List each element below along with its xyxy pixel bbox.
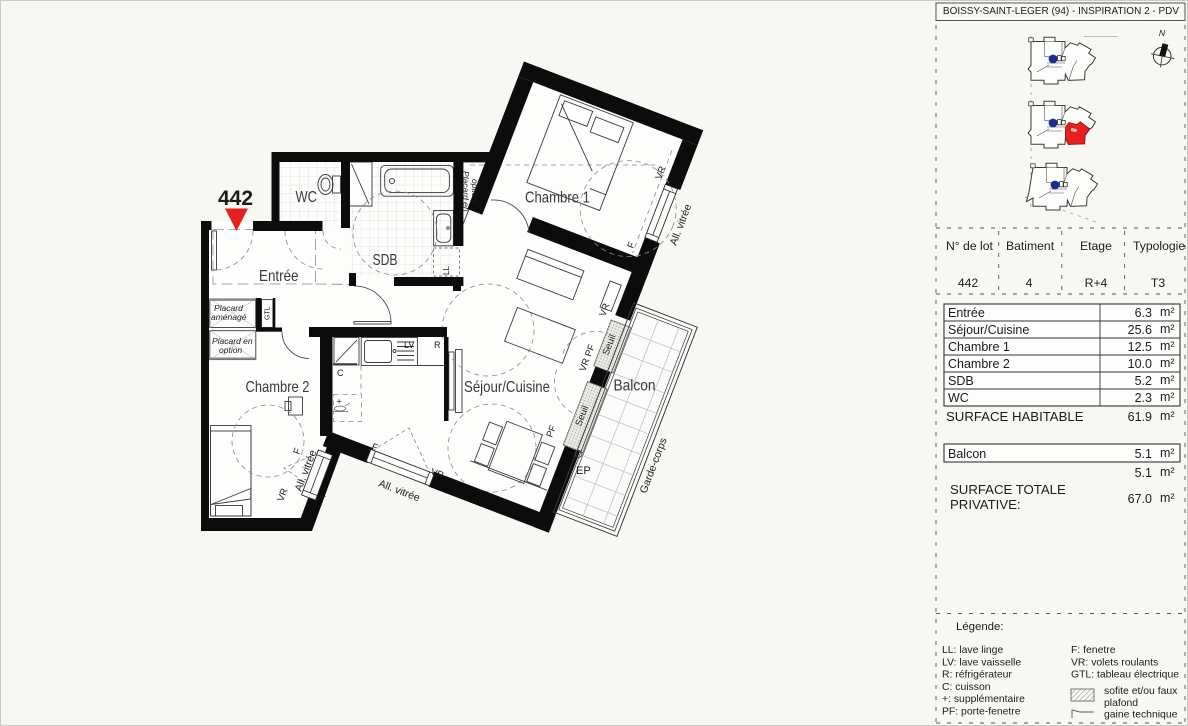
svg-text:67.0: 67.0 (1128, 492, 1152, 506)
svg-text:61.9: 61.9 (1128, 410, 1152, 424)
svg-text:GTL: tableau électrique: GTL: tableau électrique (1071, 670, 1179, 681)
svg-text:Séjour/Cuisine: Séjour/Cuisine (464, 379, 550, 396)
svg-text:sofite et/ou faux: sofite et/ou faux (1104, 686, 1178, 697)
svg-text:LV: lave vaisselle: LV: lave vaisselle (942, 657, 1021, 668)
svg-text:442: 442 (958, 276, 979, 290)
svg-text:m²: m² (1160, 339, 1175, 353)
svg-text:Entrée: Entrée (948, 306, 985, 320)
svg-text:4: 4 (1026, 276, 1033, 290)
svg-text:10.0: 10.0 (1128, 357, 1152, 371)
svg-text:m²: m² (1160, 305, 1175, 319)
svg-text:EP: EP (576, 465, 591, 477)
svg-text:R: réfrigérateur: R: réfrigérateur (942, 670, 1012, 681)
svg-text:2.3: 2.3 (1135, 391, 1152, 405)
svg-text:Placard en: Placard en (461, 171, 471, 212)
svg-text:LL: LL (442, 266, 451, 275)
svg-text:Chambre 2: Chambre 2 (948, 357, 1010, 371)
svg-text:N: N (1159, 28, 1166, 38)
svg-text:Balcon: Balcon (948, 447, 986, 461)
svg-text:25.6: 25.6 (1128, 323, 1152, 337)
svg-text:m²: m² (1160, 356, 1175, 370)
svg-text:m²: m² (1160, 390, 1175, 404)
svg-text:m²: m² (1160, 491, 1175, 505)
svg-text:WC: WC (296, 189, 318, 206)
svg-text:LV: LV (404, 340, 414, 350)
svg-text:5.1: 5.1 (1135, 466, 1152, 480)
svg-text:Chambre 1: Chambre 1 (948, 340, 1010, 354)
svg-text:12.5: 12.5 (1128, 340, 1152, 354)
svg-text:Entrée: Entrée (259, 268, 299, 285)
svg-text:Séjour/Cuisine: Séjour/Cuisine (948, 323, 1029, 337)
svg-text:m²: m² (1160, 465, 1175, 479)
svg-text:6.3: 6.3 (1135, 306, 1152, 320)
svg-text:Etage: Etage (1080, 239, 1112, 253)
svg-text:m²: m² (1160, 373, 1175, 387)
svg-text:m²: m² (1160, 446, 1175, 460)
svg-text:C: C (337, 368, 344, 378)
svg-text:GTL: GTL (265, 306, 272, 320)
svg-text:R+4: R+4 (1085, 276, 1108, 290)
svg-text:F: fenetre: F: fenetre (1071, 645, 1116, 656)
svg-text:Typologie: Typologie (1133, 239, 1185, 253)
svg-text:442: 442 (218, 187, 253, 210)
svg-text:gaine technique: gaine technique (1104, 710, 1178, 721)
svg-text:m²: m² (1160, 322, 1175, 336)
svg-text:Chambre 1: Chambre 1 (525, 190, 590, 207)
svg-text:N° de lot: N° de lot (946, 239, 993, 253)
svg-text:BOISSY-SAINT-LEGER (94) - INSP: BOISSY-SAINT-LEGER (94) - INSPIRATION 2 … (943, 6, 1179, 17)
svg-text:SURFACE TOTALE: SURFACE TOTALE (950, 482, 1066, 497)
svg-text:SDB: SDB (948, 374, 974, 388)
svg-text:option: option (470, 179, 480, 202)
svg-text:aménagé: aménagé (211, 312, 247, 322)
svg-text:option: option (219, 345, 242, 355)
svg-text:VR: volets roulants: VR: volets roulants (1071, 657, 1158, 668)
svg-text:C: cuisson: C: cuisson (942, 682, 991, 693)
svg-text:SURFACE HABITABLE: SURFACE HABITABLE (946, 409, 1084, 424)
svg-text:m²: m² (1160, 409, 1175, 423)
svg-text:PRIVATIVE:: PRIVATIVE: (950, 497, 1021, 512)
svg-text:5.1: 5.1 (1135, 447, 1152, 461)
svg-text:T3: T3 (1151, 276, 1165, 290)
svg-text:LL: lave linge: LL: lave linge (942, 645, 1003, 656)
svg-text:SDB: SDB (373, 252, 398, 269)
svg-text:plafond: plafond (1104, 698, 1138, 709)
svg-text:+: + (337, 397, 342, 407)
svg-text:WC: WC (948, 391, 969, 405)
svg-text:5.2: 5.2 (1135, 374, 1152, 388)
svg-text:Balcon: Balcon (614, 378, 656, 395)
svg-text:Légende:: Légende: (956, 621, 1004, 633)
svg-text:Batiment: Batiment (1006, 239, 1055, 253)
svg-text:Chambre 2: Chambre 2 (246, 379, 310, 396)
svg-text:PF: porte-fenetre: PF: porte-fenetre (942, 707, 1021, 718)
svg-text:R: R (434, 340, 441, 350)
svg-text:+: supplémentaire: +: supplémentaire (942, 694, 1025, 705)
